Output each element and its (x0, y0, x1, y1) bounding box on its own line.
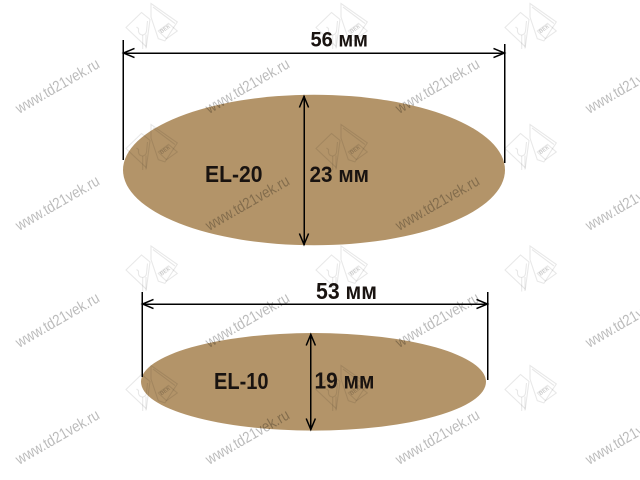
svg-text:EL-20: EL-20 (205, 161, 263, 187)
svg-text:53 мм: 53 мм (316, 278, 377, 304)
svg-text:EL-10: EL-10 (214, 368, 269, 394)
svg-text:23 мм: 23 мм (310, 162, 370, 187)
svg-text:19 мм: 19 мм (315, 368, 375, 394)
svg-text:56 мм: 56 мм (311, 29, 369, 52)
